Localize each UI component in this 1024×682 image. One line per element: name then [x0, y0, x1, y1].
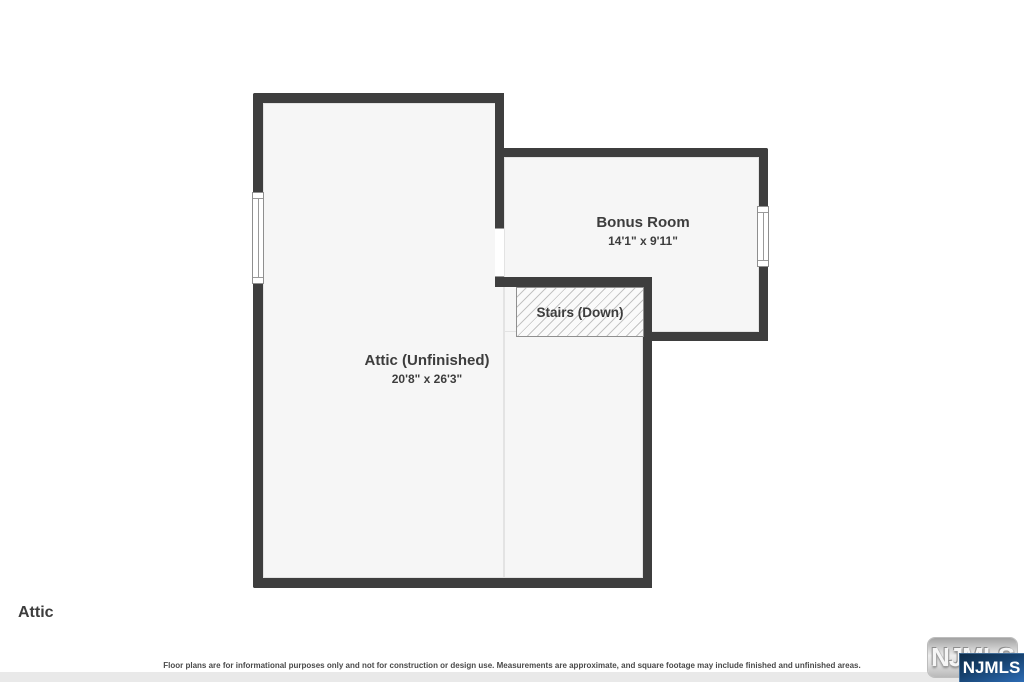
attic-room-label-group: Attic (Unfinished) 20'8" x 26'3": [307, 352, 547, 387]
disclaimer-text: Floor plans are for informational purpos…: [0, 661, 1024, 670]
room-name: Bonus Room: [523, 214, 763, 232]
room-name: Attic (Unfinished): [307, 352, 547, 370]
floor-title: Attic: [18, 604, 54, 622]
room-dimensions: 14'1" x 9'11": [523, 233, 763, 249]
window-sill-line: [253, 198, 263, 199]
wall-opening: [495, 228, 504, 277]
window-pane-line: [763, 212, 764, 261]
bonus-room-top-wall: [495, 148, 768, 157]
floorplan-canvas: Stairs (Down) Bonus Room 14'1" x 9'11" A…: [0, 0, 1024, 682]
stairs-label: Stairs (Down): [536, 305, 623, 320]
njmls-logo-badge: NJMLS: [959, 653, 1024, 682]
room-dimensions: 20'8" x 26'3": [307, 371, 547, 387]
window-pane-line: [258, 198, 259, 278]
attic-top-wall: [253, 93, 504, 103]
njmls-logo-text: NJMLS: [963, 658, 1021, 678]
window-symbol: [252, 192, 264, 284]
attic-right-upper-wall: [495, 93, 504, 228]
stairs-area: Stairs (Down): [516, 287, 644, 337]
footer-strip: [0, 672, 1024, 682]
attic-left-wall: [253, 93, 263, 588]
stairs-top-wall: [495, 277, 652, 287]
window-sill-line: [758, 212, 768, 213]
bonus-room-label-group: Bonus Room 14'1" x 9'11": [523, 214, 763, 249]
bonus-room-bottom-wall: [643, 332, 768, 341]
attic-floor-area: [263, 103, 504, 578]
attic-right-lower-wall: [643, 277, 652, 588]
window-sill-line: [758, 260, 768, 261]
attic-bottom-wall: [253, 578, 652, 588]
window-sill-line: [253, 277, 263, 278]
